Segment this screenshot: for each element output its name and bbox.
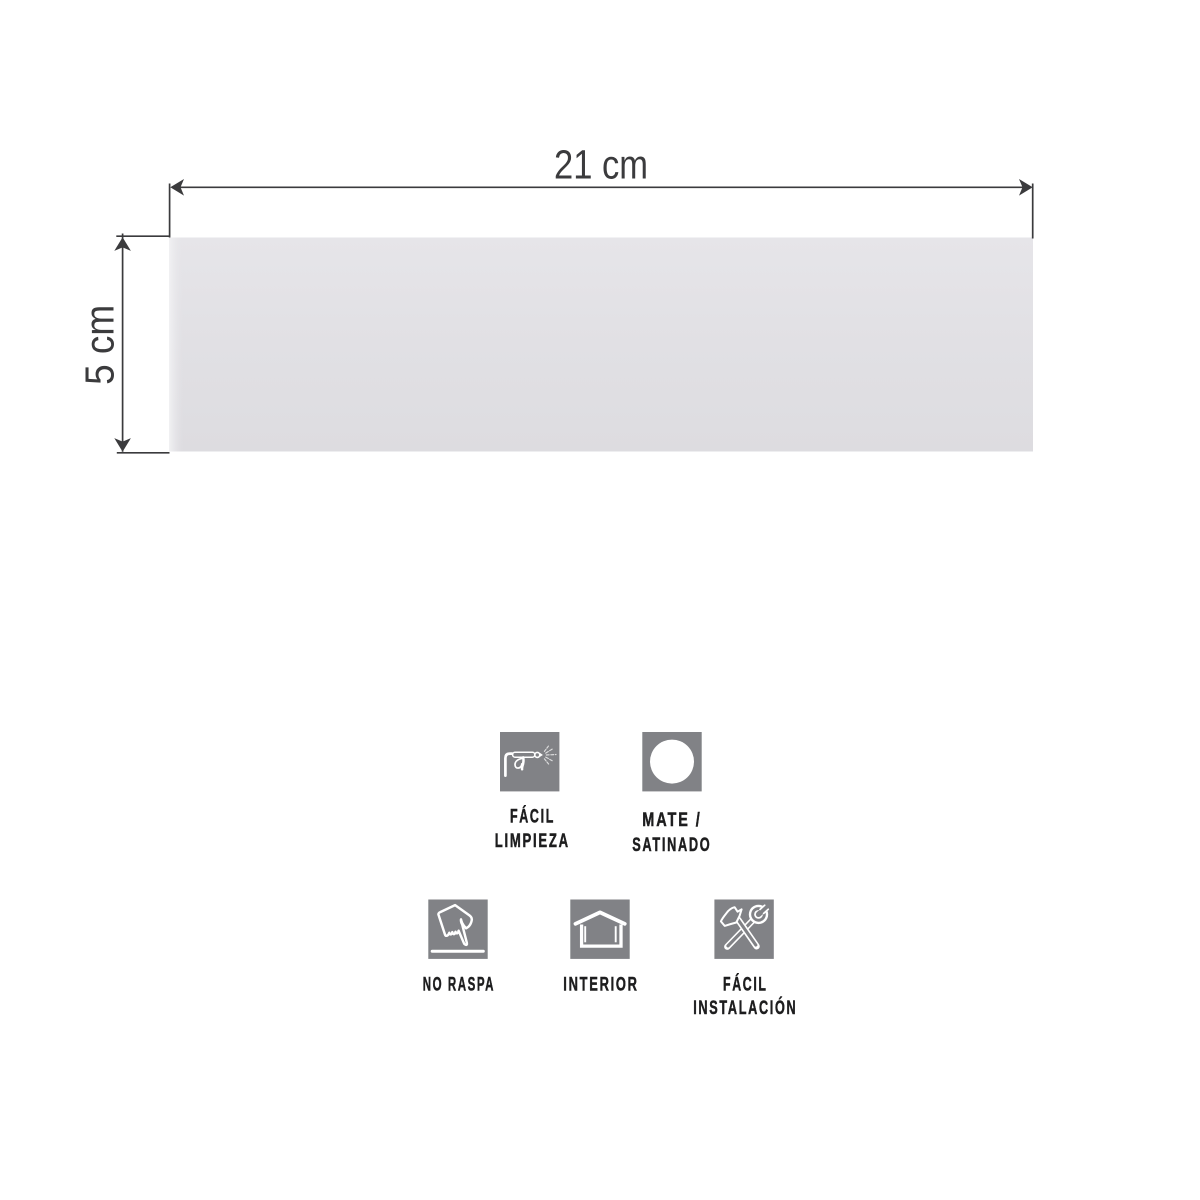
svg-text:INTERIOR: INTERIOR: [563, 974, 638, 996]
svg-text:FÁCIL: FÁCIL: [723, 973, 768, 996]
svg-text:MATE /: MATE /: [642, 809, 702, 831]
svg-text:21 cm: 21 cm: [554, 141, 648, 187]
svg-text:LIMPIEZA: LIMPIEZA: [495, 830, 570, 852]
svg-text:SATINADO: SATINADO: [632, 834, 711, 856]
svg-text:5 cm: 5 cm: [77, 305, 123, 385]
svg-text:INSTALACIÓN: INSTALACIÓN: [693, 995, 797, 1019]
svg-text:FÁCIL: FÁCIL: [510, 805, 555, 828]
svg-text:NO RASPA: NO RASPA: [423, 974, 495, 996]
